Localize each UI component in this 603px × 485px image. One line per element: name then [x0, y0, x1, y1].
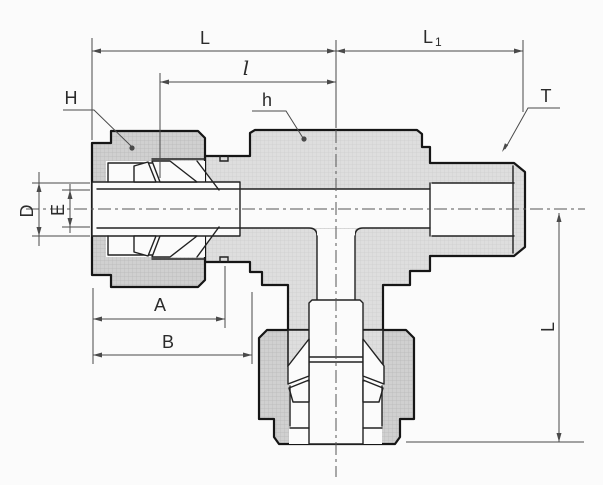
label-E: E	[48, 204, 68, 216]
label-B: B	[162, 332, 174, 352]
label-T: T	[541, 86, 552, 106]
label-h: h	[262, 90, 272, 110]
drawing-canvas: L L 1 l H h T A B D E L	[0, 0, 603, 485]
label-H: H	[65, 88, 78, 108]
leader-T	[502, 108, 560, 152]
label-L1-sub: 1	[435, 35, 442, 49]
label-L1-main: L	[423, 27, 433, 47]
label-D: D	[17, 205, 37, 218]
label-l-mid: l	[243, 56, 249, 80]
label-L-top: L	[200, 28, 210, 48]
tee-fitting-drawing: L L 1 l H h T A B D E L	[0, 0, 603, 485]
label-L-branch: L	[538, 322, 558, 332]
label-A: A	[154, 295, 166, 315]
